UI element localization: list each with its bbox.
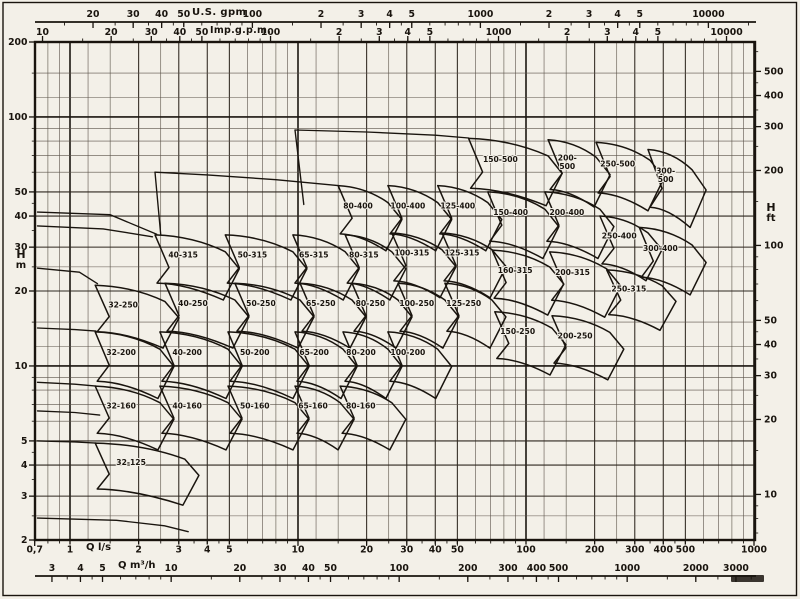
- tick-label: 400: [764, 91, 784, 102]
- tick-label: 100: [764, 240, 784, 251]
- tick-label: 2: [135, 545, 141, 556]
- region-label-80-160: 80-160: [346, 402, 376, 411]
- tick-label: 20: [105, 27, 118, 38]
- region-label-125-250: 125-250: [446, 299, 481, 308]
- tick-label: 10: [165, 563, 178, 574]
- tick-label: 5: [427, 27, 433, 38]
- tick-label: 5: [655, 27, 661, 38]
- tick-label: 50: [451, 545, 464, 556]
- region-label-100-400: 100-400: [390, 201, 425, 210]
- region-label-50-315: 50-315: [238, 251, 268, 260]
- tick-label: 2: [336, 27, 342, 38]
- region-label-40-200: 40-200: [172, 348, 202, 357]
- tick-label: 100: [389, 563, 409, 574]
- tick-label: 200: [585, 545, 605, 556]
- tick-label: 300: [764, 122, 784, 133]
- region-label-50-160: 50-160: [240, 402, 270, 411]
- tick-label: 2: [318, 9, 324, 20]
- tick-label: 40: [429, 545, 442, 556]
- tick-label: 2: [21, 535, 27, 546]
- tick-label: 3: [358, 9, 364, 20]
- tick-label: 400: [654, 545, 674, 556]
- scanned-pump-selection-chart: 150-500200-500250-500300-50080-400100-40…: [0, 0, 800, 599]
- region-label-200-250: 200-250: [558, 331, 593, 340]
- region-label-300-400: 300-400: [643, 244, 678, 253]
- tick-label: 30: [273, 563, 286, 574]
- tick-label: 10: [15, 361, 28, 372]
- tick-label: 50: [324, 563, 337, 574]
- tick-label: 3: [21, 491, 27, 502]
- tick-label: 2000: [683, 563, 709, 574]
- tick-label: 30: [400, 545, 413, 556]
- region-label-250-315: 250-315: [611, 284, 646, 293]
- tick-label: 1000: [467, 9, 493, 20]
- tick-label: 300: [625, 545, 645, 556]
- region-label-65-315: 65-315: [299, 251, 329, 260]
- tick-label: 100: [8, 112, 28, 123]
- tick-label: 20: [87, 9, 100, 20]
- region-label-40-250: 40-250: [178, 299, 208, 308]
- tick-label: 5: [226, 545, 232, 556]
- tick-label: 10: [764, 489, 777, 500]
- tick-label: 30: [145, 27, 158, 38]
- tick-label: 200: [458, 563, 478, 574]
- tick-label: 1000: [741, 545, 767, 556]
- tick-label: 4: [633, 27, 640, 38]
- region-label-50-250: 50-250: [246, 299, 276, 308]
- tick-label: 500: [676, 545, 696, 556]
- region-label-150-400: 150-400: [493, 208, 528, 217]
- region-label-32-125: 32-125: [116, 458, 146, 467]
- tick-label: 20: [764, 414, 777, 425]
- tick-label: 4: [405, 27, 412, 38]
- region-label-80-250: 80-250: [356, 299, 386, 308]
- region-label-65-250: 65-250: [306, 299, 336, 308]
- tick-label: 3: [586, 9, 592, 20]
- tick-label: 50: [764, 315, 777, 326]
- region-label-80-200: 80-200: [346, 348, 376, 357]
- region-label-65-160: 65-160: [298, 402, 328, 411]
- region-label-80-315: 80-315: [349, 251, 379, 260]
- tick-label: 40: [764, 340, 777, 351]
- tick-label: 4: [386, 9, 393, 20]
- tick-label: 5: [21, 436, 27, 447]
- tick-label: 300: [498, 563, 518, 574]
- tick-label: 0,7: [26, 545, 42, 556]
- tick-label: 5: [637, 9, 643, 20]
- region-label-100-315: 100-315: [394, 249, 429, 258]
- region-label-150-250: 150-250: [500, 327, 535, 336]
- region-label-40-315: 40-315: [168, 251, 198, 260]
- region-label-250-400: 250-400: [602, 232, 637, 241]
- tick-label: 10000: [692, 9, 725, 20]
- tick-label: 10000: [710, 27, 743, 38]
- tick-label: 4: [614, 9, 621, 20]
- tick-label: 1: [67, 545, 73, 556]
- tick-label: 200: [8, 37, 28, 48]
- tick-label: 20: [233, 563, 246, 574]
- tick-label: 100: [516, 545, 536, 556]
- tick-label: 5: [99, 563, 105, 574]
- tick-label: 1000: [486, 27, 512, 38]
- region-label-100-250: 100-250: [399, 299, 434, 308]
- tick-label: 2: [564, 27, 570, 38]
- tick-label: 10: [36, 27, 49, 38]
- tick-label: 400: [527, 563, 547, 574]
- tick-label: 3: [376, 27, 382, 38]
- print-stamp-mark: [731, 575, 764, 582]
- tick-label: 30: [127, 9, 140, 20]
- tick-label: 2: [546, 9, 552, 20]
- tick-label: 40: [155, 9, 168, 20]
- region-label-200-315: 200-315: [555, 268, 590, 277]
- tick-label: 50: [15, 187, 28, 198]
- region-label-160-315: 160-315: [498, 266, 533, 275]
- tick-label: 100: [261, 27, 281, 38]
- tick-label: 5: [409, 9, 415, 20]
- region-label-50-200: 50-200: [240, 348, 270, 357]
- region-label-125-400: 125-400: [440, 201, 475, 210]
- region-label-300-500: 300-500: [656, 166, 675, 184]
- tick-label: 30: [15, 242, 28, 253]
- tick-label: 40: [15, 211, 28, 222]
- tick-label: 20: [15, 286, 28, 297]
- tick-label: 50: [177, 9, 190, 20]
- tick-label: 500: [764, 66, 784, 77]
- tick-label: 20: [360, 545, 373, 556]
- region-label-80-400: 80-400: [343, 201, 373, 210]
- tick-label: 30: [764, 371, 777, 382]
- region-label-100-200: 100-200: [390, 348, 425, 357]
- region-label-65-200: 65-200: [299, 348, 329, 357]
- tick-label: 200: [764, 165, 784, 176]
- tick-label: 10: [292, 545, 305, 556]
- region-label-200-500: 200-500: [558, 153, 577, 171]
- tick-label: 3: [604, 27, 610, 38]
- tick-label: 40: [302, 563, 315, 574]
- region-label-250-500: 250-500: [600, 159, 635, 168]
- tick-label: 40: [173, 27, 186, 38]
- tick-label: 4: [77, 563, 84, 574]
- tick-label: 1000: [614, 563, 640, 574]
- region-label-32-250: 32-250: [108, 300, 138, 309]
- region-label-125-315: 125-315: [445, 249, 480, 258]
- tick-label: 4: [204, 545, 211, 556]
- region-label-32-160: 32-160: [106, 402, 136, 411]
- pump-selection-chart: 150-500200-500250-500300-50080-400100-40…: [0, 0, 800, 599]
- region-label-150-500: 150-500: [483, 155, 518, 164]
- region-label-40-160: 40-160: [172, 402, 202, 411]
- tick-label: 3: [49, 563, 55, 574]
- region-label-32-200: 32-200: [106, 348, 136, 357]
- region-label-200-400: 200-400: [549, 208, 584, 217]
- tick-label: 50: [195, 27, 208, 38]
- tick-label: 100: [243, 9, 263, 20]
- tick-label: 500: [549, 563, 569, 574]
- tick-label: 4: [21, 460, 28, 471]
- tick-label: 3000: [723, 563, 749, 574]
- tick-label: 3: [176, 545, 182, 556]
